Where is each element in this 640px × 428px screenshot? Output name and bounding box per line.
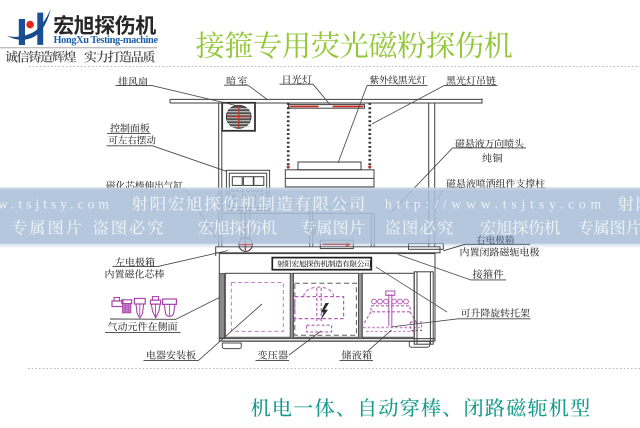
svg-text:HongXu Testing-machine: HongXu Testing-machine [54, 35, 159, 46]
svg-text:w.tsjtsy.com: w.tsjtsy.com [0, 197, 113, 212]
svg-text:http://www.tsjtsy.com: http://www.tsjtsy.com [385, 197, 606, 212]
